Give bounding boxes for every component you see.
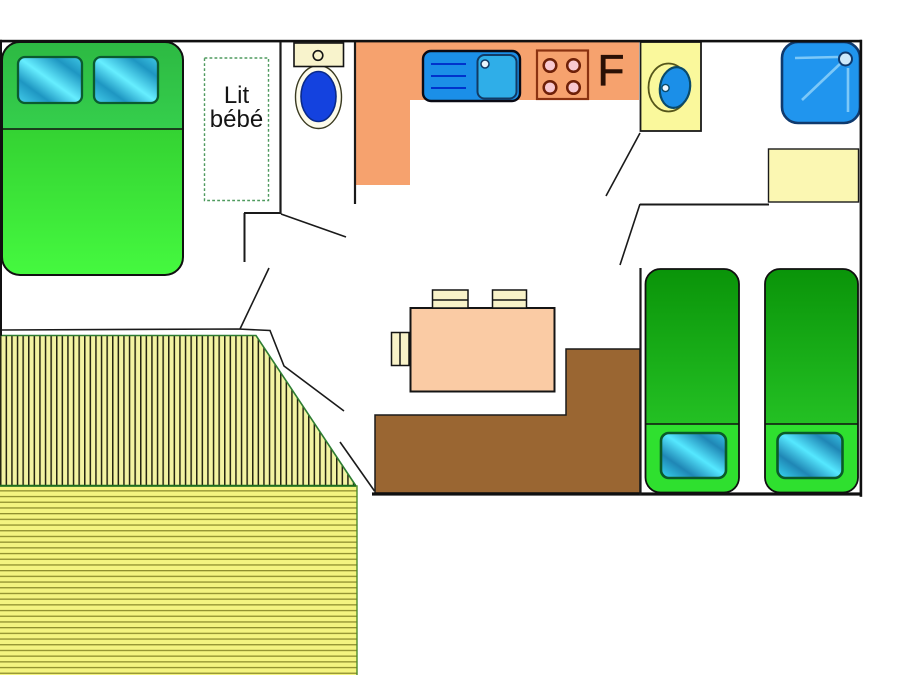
svg-text:Lit: Lit	[224, 82, 250, 109]
svg-text:F: F	[598, 46, 625, 95]
svg-text:bébé: bébé	[210, 106, 263, 133]
